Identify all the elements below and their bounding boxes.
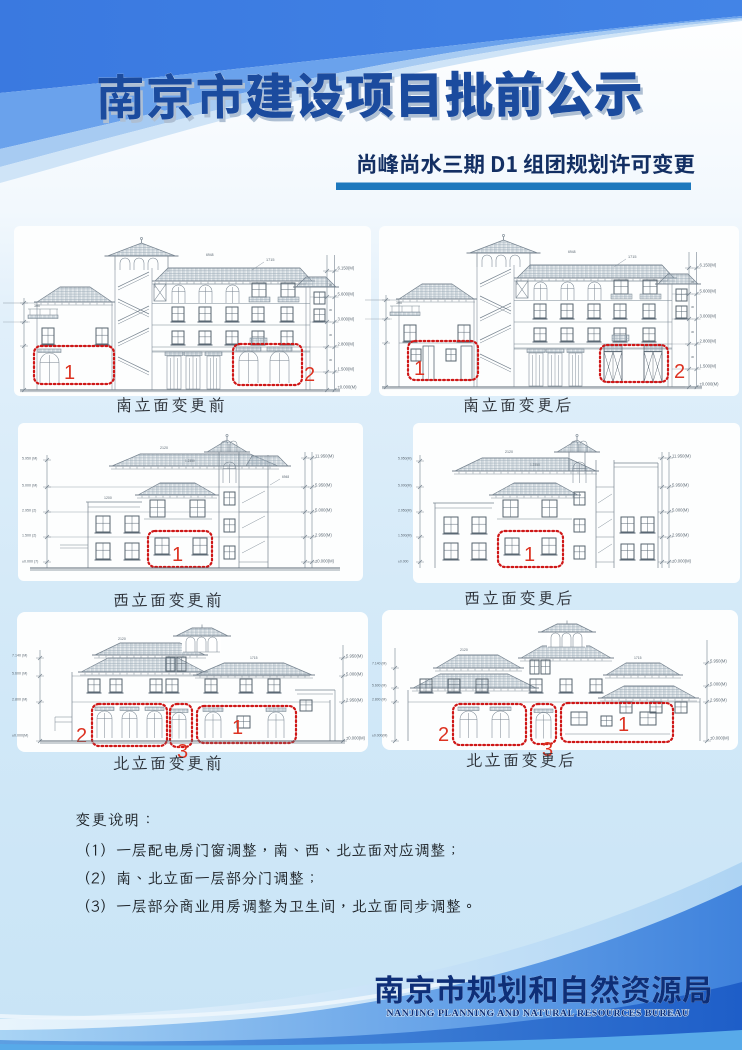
svg-text:6948: 6948 (206, 253, 214, 257)
svg-text:±0.000(M): ±0.000(M) (12, 734, 28, 738)
svg-text:5.600 (M): 5.600 (M) (12, 672, 27, 676)
svg-text:1: 1 (172, 544, 183, 566)
svg-text:±0.000(M): ±0.000(M) (672, 559, 692, 564)
svg-text:30: 30 (329, 308, 333, 312)
svg-text:3.000(M): 3.000(M) (338, 317, 355, 322)
svg-text:1: 1 (64, 362, 75, 384)
svg-text:1.500(M): 1.500(M) (700, 364, 717, 369)
svg-text:11.950(M): 11.950(M) (315, 454, 334, 459)
svg-text:1: 1 (524, 544, 535, 566)
svg-text:6948: 6948 (568, 250, 576, 254)
svg-text:1715: 1715 (628, 255, 636, 259)
svg-text:2.800(M): 2.800(M) (700, 339, 717, 344)
svg-text:5.950(M): 5.950(M) (398, 457, 412, 461)
svg-text:5.950(M): 5.950(M) (672, 483, 689, 488)
svg-text:1.500(M): 1.500(M) (338, 367, 355, 372)
svg-text:5.000 (M): 5.000 (M) (22, 484, 37, 488)
svg-text:5.950(M): 5.950(M) (315, 483, 332, 488)
svg-text:±0.000(M): ±0.000(M) (710, 736, 730, 741)
svg-text:±0.000: ±0.000 (398, 560, 408, 564)
svg-text:2: 2 (76, 725, 87, 747)
svg-text:2: 2 (674, 361, 685, 383)
svg-text:1.2350: 1.2350 (185, 459, 195, 463)
svg-text:5.000(M): 5.000(M) (315, 508, 332, 513)
svg-text:2120: 2120 (460, 648, 468, 652)
svg-text:2120: 2120 (118, 637, 126, 641)
svg-text:30: 30 (691, 305, 695, 309)
svg-text:±0.000(M): ±0.000(M) (338, 385, 358, 390)
svg-text:2.950(M): 2.950(M) (672, 533, 689, 538)
svg-text:6.150(M): 6.150(M) (700, 263, 717, 268)
svg-text:1715: 1715 (634, 656, 642, 660)
svg-text:30: 30 (329, 333, 333, 337)
svg-text:1715: 1715 (250, 656, 258, 660)
svg-text:2.950(M): 2.950(M) (710, 698, 727, 703)
svg-text:2.800 (M): 2.800 (M) (372, 698, 387, 702)
svg-text:NANJING PLANNING AND NATURA: NANJING PLANNING AND NATURAL RESOURCES B… (387, 1008, 690, 1019)
svg-text:300: 300 (34, 304, 40, 308)
svg-text:2.950(M): 2.950(M) (346, 698, 363, 703)
svg-text:2.950 (2): 2.950 (2) (22, 509, 36, 513)
svg-text:±0.000(M): ±0.000(M) (700, 382, 720, 387)
svg-text:5.000(M): 5.000(M) (710, 682, 727, 687)
svg-text:2.800 (M): 2.800 (M) (12, 698, 27, 702)
svg-text:2.950(M): 2.950(M) (315, 533, 332, 538)
svg-text:5.950 (M): 5.950 (M) (22, 457, 37, 461)
svg-text:3: 3 (177, 741, 188, 763)
svg-text:1: 1 (414, 358, 425, 380)
svg-text:3.000(M): 3.000(M) (700, 314, 717, 319)
svg-text:7.140 (M): 7.140 (M) (372, 662, 387, 666)
svg-text:5.000(M): 5.000(M) (398, 484, 412, 488)
svg-text:1200: 1200 (104, 496, 112, 500)
svg-text:±0.000 (7): ±0.000 (7) (22, 560, 38, 564)
svg-text:1.500 (2): 1.500 (2) (22, 534, 36, 538)
svg-text:5.600 (M): 5.600 (M) (372, 684, 387, 688)
svg-text:1.2350: 1.2350 (530, 463, 540, 467)
svg-text:±0.000(M): ±0.000(M) (346, 736, 366, 741)
svg-text:2120: 2120 (160, 446, 168, 450)
svg-text:30: 30 (329, 283, 333, 287)
svg-text:6.150(M): 6.150(M) (338, 266, 355, 271)
svg-text:±0.000(M): ±0.000(M) (372, 734, 387, 738)
svg-text:1.500(M): 1.500(M) (398, 534, 412, 538)
svg-text:30: 30 (691, 330, 695, 334)
svg-text:2: 2 (438, 724, 449, 746)
svg-text:11.950(M): 11.950(M) (672, 454, 691, 459)
svg-text:2.950(M): 2.950(M) (398, 509, 412, 513)
svg-text:2: 2 (304, 364, 315, 386)
svg-text:1: 1 (232, 717, 243, 739)
svg-text:30: 30 (691, 355, 695, 359)
svg-text:5.950(M): 5.950(M) (346, 654, 363, 659)
svg-text:1: 1 (618, 714, 629, 736)
svg-text:5.600(M): 5.600(M) (338, 292, 355, 297)
svg-text:±0.000(M): ±0.000(M) (315, 559, 335, 564)
svg-text:6948: 6948 (282, 475, 289, 479)
svg-text:30: 30 (691, 280, 695, 284)
svg-text:5.600(M): 5.600(M) (700, 289, 717, 294)
svg-text:2120: 2120 (505, 450, 513, 454)
svg-text:30: 30 (329, 358, 333, 362)
svg-text:300: 300 (396, 301, 402, 305)
svg-text:2.800(M): 2.800(M) (338, 342, 355, 347)
svg-text:5.000(M): 5.000(M) (672, 508, 689, 513)
svg-text:1715: 1715 (266, 258, 274, 262)
svg-text:5.950(M): 5.950(M) (710, 659, 727, 664)
svg-text:7.140 (M): 7.140 (M) (12, 654, 27, 658)
svg-text:5.000(M): 5.000(M) (346, 672, 363, 677)
